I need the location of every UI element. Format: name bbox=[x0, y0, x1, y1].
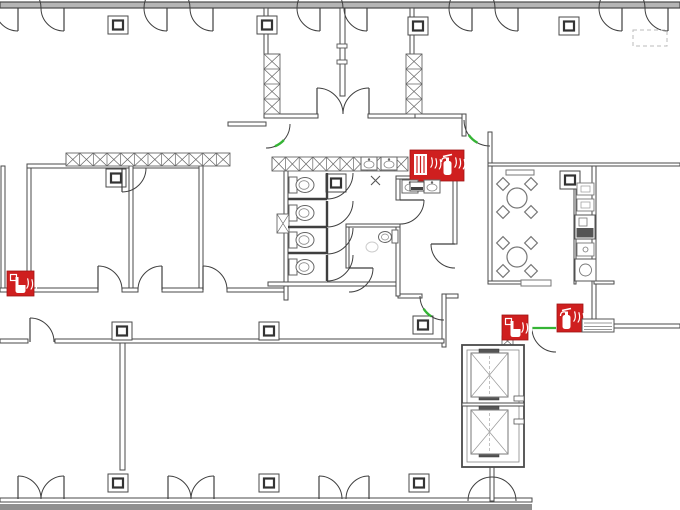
chair bbox=[497, 237, 510, 250]
fire-hose-reel-extinguisher-panel bbox=[410, 150, 465, 181]
corridor-top-wall-2 bbox=[122, 288, 138, 292]
chair bbox=[525, 206, 538, 219]
vestibule-bottom-wall-left bbox=[264, 114, 318, 118]
structural-column bbox=[257, 16, 277, 34]
floor-x-mark bbox=[371, 176, 380, 185]
exit-door-left-vestibule bbox=[266, 124, 290, 148]
kitchen-item bbox=[577, 243, 594, 256]
hatched-wall-stall bbox=[277, 214, 289, 233]
wc-room-left-wall bbox=[346, 227, 349, 268]
door-bottom-1-right bbox=[41, 476, 64, 499]
round-table-with-chairs bbox=[497, 237, 538, 278]
chair bbox=[497, 178, 510, 191]
hatched-wall-vestibule-right bbox=[406, 54, 422, 114]
manual-call-point-marker bbox=[502, 315, 532, 340]
door-jamb bbox=[337, 44, 347, 48]
exit-direction-mark bbox=[424, 309, 432, 317]
corridor-bottom-wall-1 bbox=[0, 339, 28, 343]
structural-column bbox=[408, 17, 428, 35]
hatched-wall-left bbox=[66, 153, 230, 166]
bench bbox=[506, 170, 534, 175]
door-top-3-right bbox=[344, 8, 367, 31]
vestibule-mid-wall bbox=[340, 8, 345, 96]
vent-grille-wall bbox=[582, 319, 614, 332]
door-vestibule-left-leaf bbox=[317, 88, 343, 114]
corridor-top-wall-4 bbox=[227, 288, 287, 292]
floor-plan-canvas bbox=[0, 0, 680, 510]
kitchen-stove bbox=[575, 215, 595, 239]
chair bbox=[497, 265, 510, 278]
exit-direction-mark bbox=[469, 135, 478, 143]
door-bottom-2-left bbox=[168, 476, 191, 499]
floor-plan bbox=[0, 0, 680, 510]
structural-column bbox=[559, 17, 579, 35]
bottom-exterior-wall bbox=[0, 498, 532, 502]
kitchen-sink-unit bbox=[575, 259, 596, 281]
structural-column bbox=[326, 174, 346, 192]
door-bottom-3-left bbox=[319, 476, 342, 499]
door-stall-2 bbox=[327, 201, 353, 227]
door-vestibule-right-leaf bbox=[343, 88, 369, 114]
hatched-wall-vestibule-left bbox=[264, 54, 280, 114]
sink-fixture bbox=[381, 157, 397, 170]
kitchen-item bbox=[577, 183, 594, 195]
hose-reel-icon bbox=[414, 154, 427, 175]
elevator-car bbox=[471, 410, 508, 454]
breakroom-left-wall bbox=[488, 166, 492, 284]
structural-column bbox=[409, 474, 429, 492]
elevator-door-jamb bbox=[514, 396, 524, 401]
washroom-left-wall-upper bbox=[396, 179, 400, 200]
room-divider-a-b bbox=[129, 166, 133, 290]
corridor-top-wall-3 bbox=[162, 288, 203, 292]
chair bbox=[525, 265, 538, 278]
office-partition-wall bbox=[120, 343, 125, 470]
toilet-fixture bbox=[289, 177, 314, 193]
door-top-1-right bbox=[41, 8, 64, 31]
bottom-exterior-band bbox=[0, 504, 532, 510]
structural-column bbox=[108, 16, 128, 34]
toilet-fixture bbox=[289, 232, 314, 248]
toilet-bottom-wall-left bbox=[268, 282, 398, 286]
door-room-b bbox=[138, 266, 162, 290]
top-exterior-wall bbox=[0, 2, 680, 8]
door-bottom-1-left bbox=[18, 476, 41, 499]
closet-outline bbox=[633, 30, 667, 46]
door-washroom-right bbox=[431, 244, 455, 268]
washroom-right-wall bbox=[453, 176, 457, 244]
toilet-left-wall bbox=[284, 167, 288, 300]
bench bbox=[521, 280, 551, 286]
wall-hung-toilet bbox=[379, 230, 399, 243]
vestibule-bottom-wall-right bbox=[368, 114, 415, 118]
ghost-fixture bbox=[366, 242, 378, 252]
left-vestibule-west-wall bbox=[228, 122, 266, 126]
structural-column bbox=[259, 474, 279, 492]
breakroom-entry-wall bbox=[488, 132, 492, 166]
door-wc-room bbox=[349, 268, 373, 292]
hall-wall-y114 bbox=[415, 114, 466, 118]
structural-column bbox=[108, 474, 128, 492]
door-bay bbox=[203, 266, 227, 290]
exit-door-breakroom-entry bbox=[464, 120, 490, 146]
exit-direction-mark bbox=[275, 140, 284, 146]
round-table-with-chairs bbox=[497, 178, 538, 219]
right-lobby-wall bbox=[614, 324, 680, 328]
door-corridor-office bbox=[30, 318, 54, 342]
sink-fixture bbox=[424, 180, 440, 193]
sink-fixture bbox=[361, 157, 377, 170]
door-washroom bbox=[400, 200, 424, 224]
structural-column bbox=[106, 169, 126, 187]
door-top-4-right bbox=[495, 8, 518, 31]
chair bbox=[497, 206, 510, 219]
chair bbox=[525, 178, 538, 191]
right-wing-top-wall bbox=[488, 163, 680, 166]
door-room-a bbox=[98, 266, 122, 290]
structural-column bbox=[413, 316, 433, 334]
structural-column bbox=[259, 322, 279, 340]
door-bottom-3-right bbox=[346, 476, 369, 499]
door-jamb bbox=[337, 60, 347, 64]
fire-extinguisher-marker bbox=[557, 304, 584, 332]
panel-sub-box bbox=[410, 182, 424, 191]
toilet-bottom-wall-mid bbox=[398, 294, 422, 298]
elevator-car bbox=[471, 353, 508, 397]
left-shaft-west-wall bbox=[1, 166, 5, 292]
toilet-fixture bbox=[289, 205, 314, 221]
structural-column bbox=[112, 322, 132, 340]
door-top-5-right bbox=[645, 8, 668, 31]
door-bottom-2-right bbox=[191, 476, 214, 499]
below-shaft-wall bbox=[490, 465, 494, 501]
door-top-2-right bbox=[190, 8, 213, 31]
elevator-door-jamb bbox=[514, 419, 524, 424]
wc-room-top-wall bbox=[346, 224, 400, 227]
kitchen-bottom-wall bbox=[594, 281, 614, 284]
manual-call-point-extinguisher-marker bbox=[7, 271, 37, 296]
exit-door-elevator-lobby bbox=[532, 328, 556, 352]
toilet-fixture bbox=[289, 259, 314, 275]
chair bbox=[525, 237, 538, 250]
kitchen-item bbox=[577, 199, 594, 211]
